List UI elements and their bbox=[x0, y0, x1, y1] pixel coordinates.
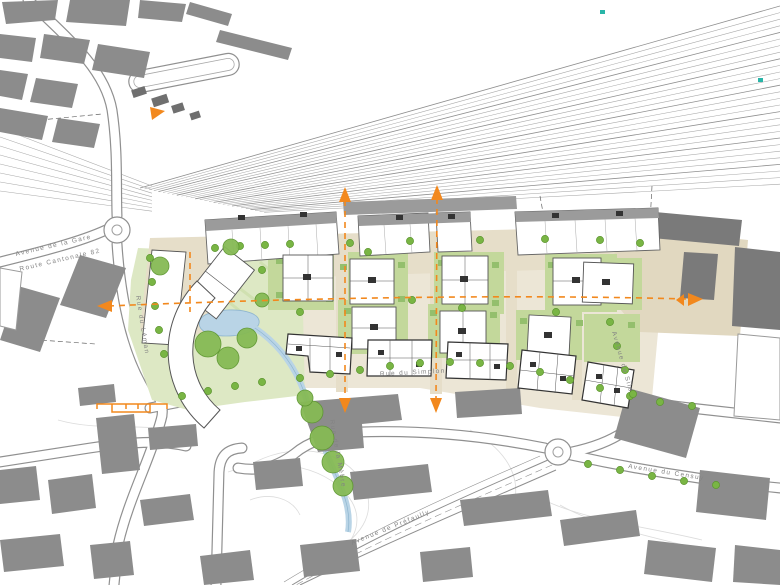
passage-arrow-down-east bbox=[430, 398, 442, 413]
passage-arrow-up-east bbox=[431, 185, 443, 200]
roundabout-station bbox=[104, 217, 130, 243]
passage-arrow-up-west bbox=[339, 187, 351, 202]
label-avenue-de-prefaully: Avenue de Préfaully bbox=[350, 509, 431, 547]
roundabout-censuy bbox=[545, 439, 571, 465]
masterplan-site-plan: Avenue de la Gare Route Cantonale 82 Rue… bbox=[0, 0, 780, 585]
road-marker-arrow bbox=[150, 107, 165, 120]
